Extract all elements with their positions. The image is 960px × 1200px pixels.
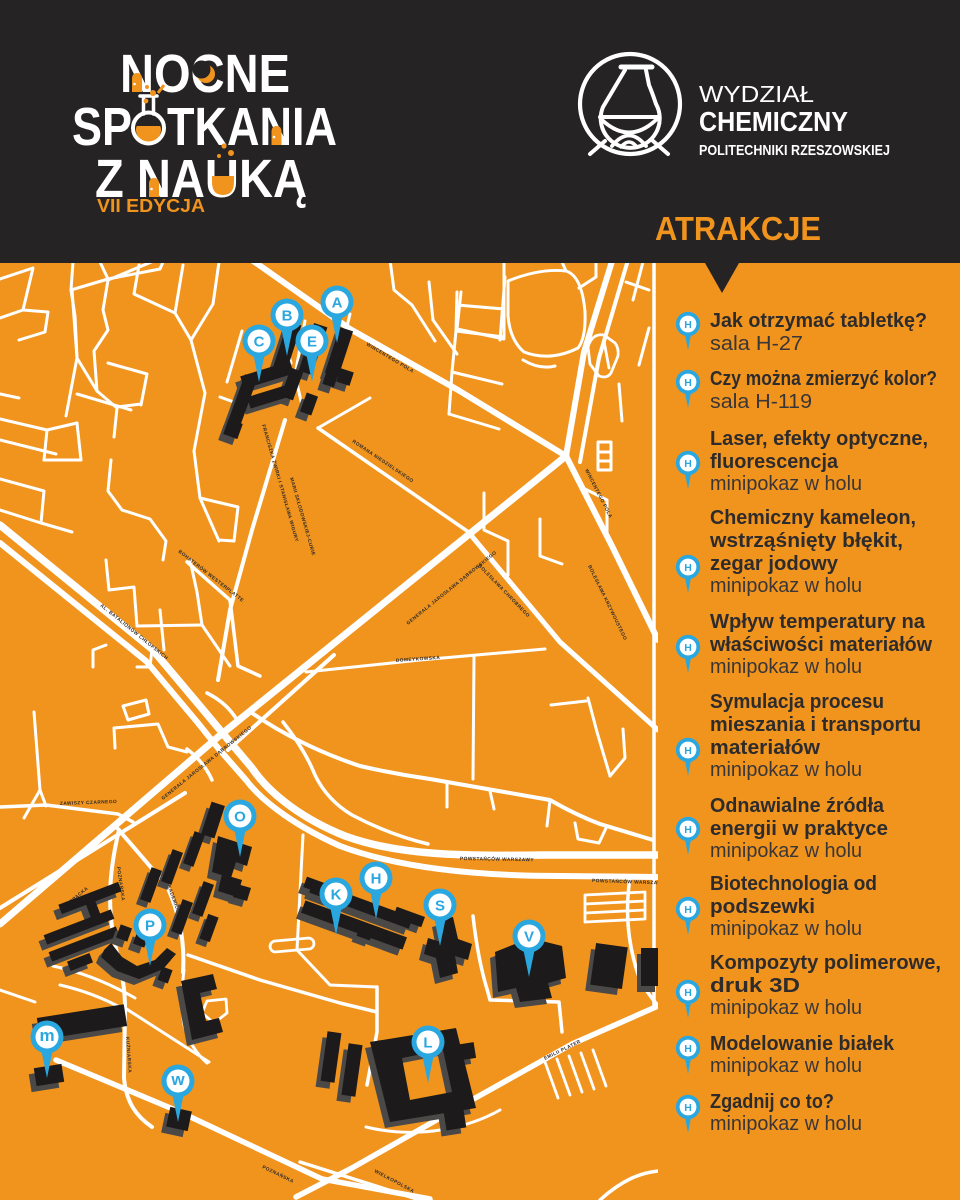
svg-text:L: L	[423, 1035, 432, 1052]
svg-text:Laser, efekty optyczne,: Laser, efekty optyczne,	[710, 427, 928, 450]
svg-text:sala H-27: sala H-27	[710, 333, 803, 355]
svg-text:Czy można zmierzyć kolor?: Czy można zmierzyć kolor?	[710, 367, 937, 390]
svg-text:minipokaz w holu: minipokaz w holu	[710, 1055, 862, 1077]
svg-text:H: H	[684, 1102, 692, 1114]
svg-text:podszewki: podszewki	[710, 895, 815, 918]
svg-text:minipokaz w holu: minipokaz w holu	[710, 918, 862, 940]
svg-text:H: H	[684, 745, 692, 757]
svg-text:A: A	[332, 295, 343, 312]
svg-text:druk 3D: druk 3D	[710, 974, 800, 997]
svg-text:POLITECHNIKI RZESZOWSKIEJ: POLITECHNIKI RZESZOWSKIEJ	[699, 142, 890, 159]
svg-text:K: K	[331, 887, 342, 904]
svg-text:CHEMICZNY: CHEMICZNY	[699, 106, 848, 137]
svg-text:S: S	[435, 898, 445, 915]
svg-text:H: H	[684, 642, 692, 654]
svg-text:fluorescencja: fluorescencja	[710, 450, 839, 473]
svg-text:V: V	[524, 929, 534, 946]
svg-text:materiałów: materiałów	[710, 736, 820, 759]
svg-text:właściwości materiałów: właściwości materiałów	[709, 633, 932, 656]
svg-text:m: m	[39, 1026, 54, 1045]
svg-text:Symulacja procesu: Symulacja procesu	[710, 690, 884, 713]
svg-text:minipokaz w holu: minipokaz w holu	[710, 759, 862, 781]
svg-text:H: H	[684, 562, 692, 574]
svg-text:minipokaz w holu: minipokaz w holu	[710, 840, 862, 862]
svg-text:H: H	[684, 904, 692, 916]
svg-text:SP: SP	[72, 97, 132, 157]
svg-text:energii w praktyce: energii w praktyce	[710, 817, 888, 840]
svg-text:wstrząśnięty błękit,: wstrząśnięty błękit,	[709, 529, 903, 552]
svg-text:C: C	[254, 334, 265, 351]
svg-text:Jak otrzymać tabletkę?: Jak otrzymać tabletkę?	[710, 309, 927, 332]
svg-text:Zgadnij co to?: Zgadnij co to?	[710, 1090, 834, 1113]
svg-text:H: H	[371, 871, 382, 888]
svg-text:H: H	[684, 377, 692, 389]
svg-text:H: H	[684, 987, 692, 999]
svg-text:ATRAKCJE: ATRAKCJE	[655, 210, 821, 247]
svg-text:Odnawialne źródła: Odnawialne źródła	[710, 794, 885, 817]
svg-text:minipokaz w holu: minipokaz w holu	[710, 575, 862, 597]
svg-text:mieszania i transportu: mieszania i transportu	[710, 713, 921, 736]
svg-text:H: H	[684, 1043, 692, 1055]
svg-text:TKANIA: TKANIA	[167, 97, 337, 157]
svg-text:sala H-119: sala H-119	[710, 391, 812, 413]
svg-text:H: H	[684, 458, 692, 470]
svg-text:zegar jodowy: zegar jodowy	[710, 552, 839, 575]
svg-text:E: E	[307, 334, 317, 351]
svg-text:Wpływ temperatury na: Wpływ temperatury na	[710, 610, 926, 633]
svg-text:Biotechnologia od: Biotechnologia od	[710, 872, 877, 895]
svg-text:minipokaz w holu: minipokaz w holu	[710, 997, 862, 1019]
svg-text:minipokaz w holu: minipokaz w holu	[710, 1113, 862, 1135]
svg-text:Modelowanie białek: Modelowanie białek	[710, 1032, 895, 1055]
svg-text:P: P	[145, 918, 155, 935]
svg-text:B: B	[282, 308, 293, 325]
svg-text:Chemiczny kameleon,: Chemiczny kameleon,	[710, 506, 916, 529]
svg-text:minipokaz w holu: minipokaz w holu	[710, 656, 862, 678]
svg-text:WYDZIAŁ: WYDZIAŁ	[699, 81, 814, 107]
svg-text:H: H	[684, 824, 692, 836]
svg-text:H: H	[684, 319, 692, 331]
svg-text:VII EDYCJA: VII EDYCJA	[97, 195, 205, 216]
svg-text:w: w	[170, 1070, 185, 1089]
svg-text:Kompozyty polimerowe,: Kompozyty polimerowe,	[710, 951, 941, 974]
svg-text:minipokaz w holu: minipokaz w holu	[710, 473, 862, 495]
svg-text:O: O	[234, 809, 246, 826]
